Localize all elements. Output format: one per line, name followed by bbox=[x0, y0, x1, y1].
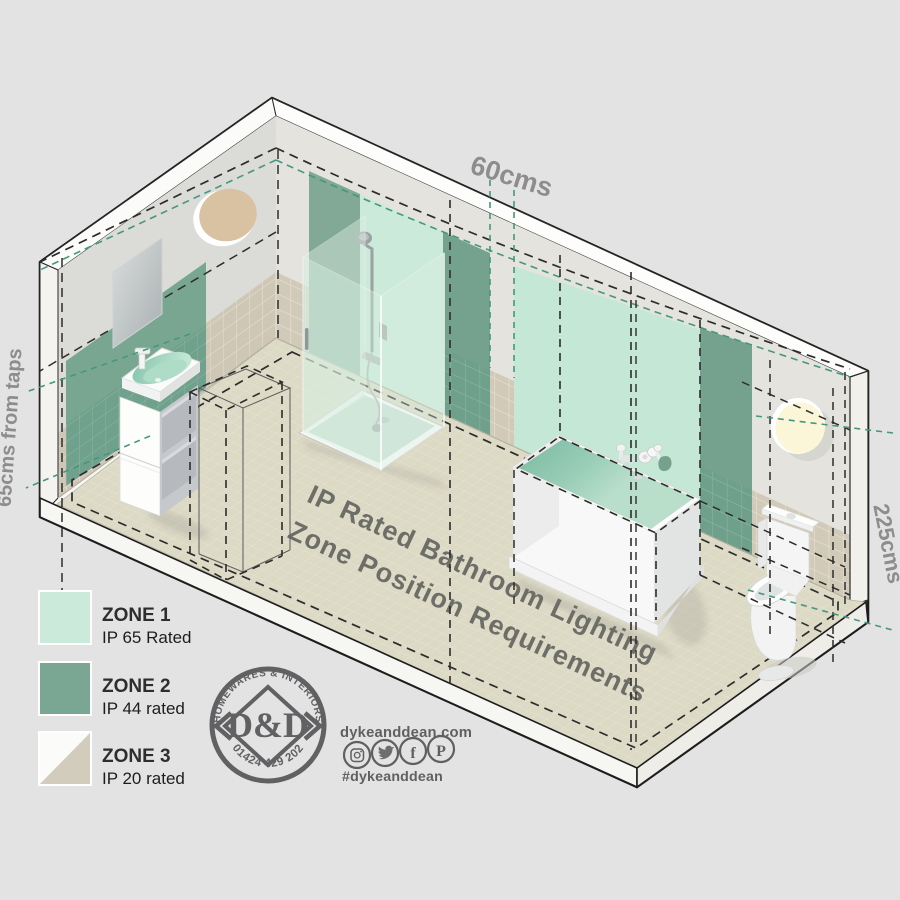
svg-text:P: P bbox=[436, 743, 446, 760]
svg-text:IP 65 Rated: IP 65 Rated bbox=[102, 628, 191, 647]
svg-text:#dykeanddean: #dykeanddean bbox=[342, 769, 443, 785]
svg-text:ZONE 3: ZONE 3 bbox=[102, 746, 171, 767]
svg-text:IP 20 rated: IP 20 rated bbox=[102, 769, 185, 788]
svg-text:dykeanddean.com: dykeanddean.com bbox=[340, 725, 472, 741]
svg-text:D&D: D&D bbox=[227, 705, 309, 745]
svg-text:ZONE 2: ZONE 2 bbox=[102, 676, 171, 697]
svg-text:f: f bbox=[410, 745, 416, 762]
svg-text:IP 44 rated: IP 44 rated bbox=[102, 699, 185, 718]
svg-text:ZONE 1: ZONE 1 bbox=[102, 605, 171, 626]
